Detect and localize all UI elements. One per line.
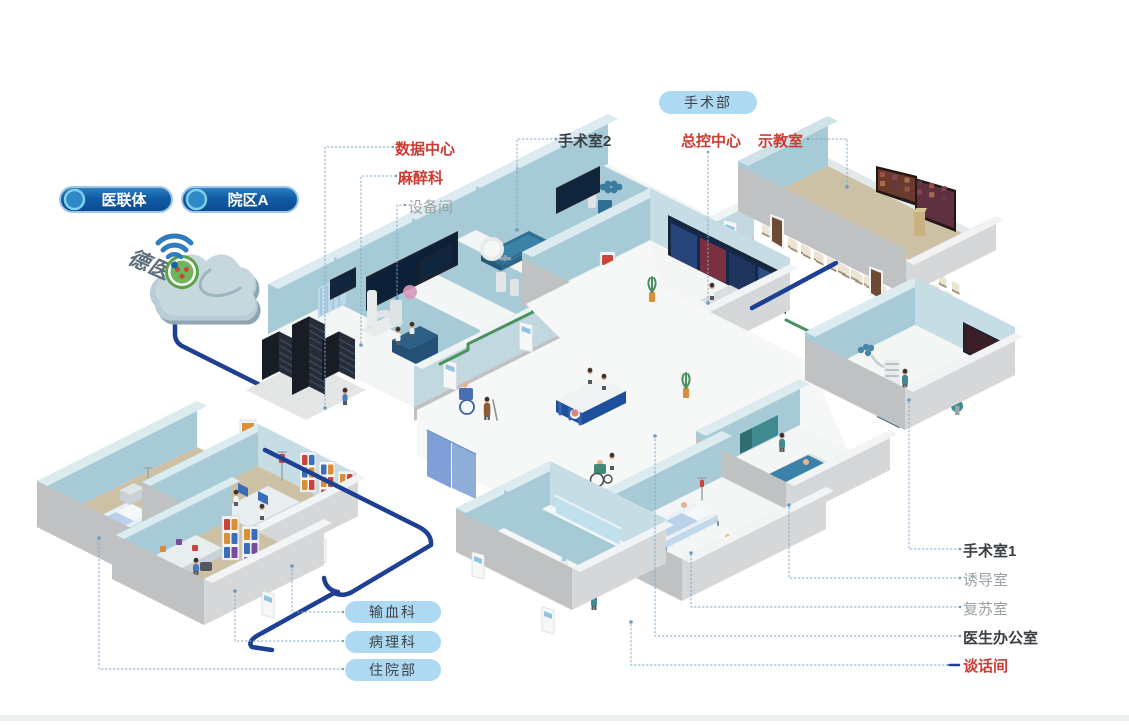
svg-text:设备间: 设备间: [408, 199, 453, 216]
svg-text:总控中心: 总控中心: [681, 132, 741, 150]
svg-text:手术部: 手术部: [684, 95, 732, 111]
svg-text:谈话间: 谈话间: [963, 657, 1008, 675]
svg-text:数据中心: 数据中心: [395, 140, 455, 158]
svg-text:手术室1: 手术室1: [963, 542, 1016, 560]
svg-text:医生办公室: 医生办公室: [963, 629, 1038, 647]
svg-text:病理科: 病理科: [369, 634, 417, 650]
svg-text:复苏室: 复苏室: [963, 600, 1008, 618]
svg-text:诱导室: 诱导室: [963, 572, 1008, 589]
svg-text:医联体: 医联体: [101, 191, 147, 209]
svg-text:住院部: 住院部: [369, 662, 417, 678]
svg-text:麻醉科: 麻醉科: [397, 169, 443, 187]
svg-text:输血科: 输血科: [369, 604, 417, 620]
svg-text:示教室: 示教室: [758, 132, 803, 150]
svg-text:手术室2: 手术室2: [558, 132, 611, 150]
svg-text:院区A: 院区A: [228, 191, 269, 209]
